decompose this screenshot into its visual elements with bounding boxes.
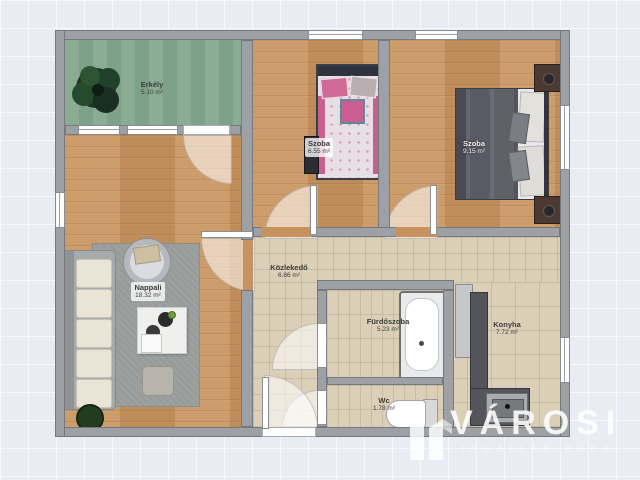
wall-bathroom-wc-divider xyxy=(327,377,443,385)
wall-kitchen-left xyxy=(443,290,454,427)
living-hall-door-opening xyxy=(243,240,253,290)
table-lamp xyxy=(543,205,555,217)
kitchen-counter-vertical xyxy=(470,292,488,398)
bathtub xyxy=(399,291,447,380)
window-balcony-1 xyxy=(78,125,120,135)
brand-tagline: INGATLANIRODA xyxy=(462,444,615,454)
table-lamp xyxy=(543,73,555,85)
hallway-floor-band xyxy=(253,237,560,282)
sofa xyxy=(60,250,116,410)
window-bedroom-large-right xyxy=(560,105,570,170)
coffee-table xyxy=(137,307,187,354)
window-bedroom-large-top xyxy=(415,30,458,40)
decor-plant xyxy=(168,311,176,319)
bedroom-small-door-opening xyxy=(262,227,312,237)
sofa-cushion xyxy=(76,319,112,348)
bathtub-drain xyxy=(419,341,424,346)
balcony-tree xyxy=(68,60,132,122)
blanket-edge xyxy=(318,96,325,174)
window-bedroom-small xyxy=(308,30,363,40)
sink-faucet xyxy=(505,404,510,409)
wall-mid-vertical-upper xyxy=(241,40,253,240)
floor-plan-canvas: { "watermark": { "brand": "VÁROSI", "tag… xyxy=(0,0,640,480)
sofa-cushion xyxy=(76,289,112,318)
wall-mid-vertical-lower xyxy=(241,290,253,427)
wall-outer-left xyxy=(55,30,65,437)
nightstand xyxy=(534,196,562,224)
entry-door-opening xyxy=(262,427,316,437)
toilet-bowl xyxy=(386,400,426,428)
entry-door-leaf xyxy=(262,377,269,429)
bedroom-large-door-leaf xyxy=(430,185,437,235)
bedroom-small-door-leaf xyxy=(310,185,317,235)
cushion xyxy=(340,99,365,124)
decor-box xyxy=(141,334,162,353)
pillow xyxy=(349,76,378,99)
wc-door-leaf xyxy=(317,390,327,425)
sofa-cushion xyxy=(76,349,112,378)
bedside-unit xyxy=(304,136,319,174)
balcony-door-opening xyxy=(183,125,230,135)
throw-blanket xyxy=(456,89,466,199)
bathroom-door-leaf xyxy=(317,323,327,368)
nightstand xyxy=(534,64,562,92)
wall-bedroom-divider xyxy=(378,40,390,237)
window-living-left xyxy=(55,192,65,228)
kitchen-sink xyxy=(486,393,528,423)
living-hall-door-leaf xyxy=(201,231,253,238)
armchair-pillow xyxy=(133,244,161,264)
window-balcony-2 xyxy=(127,125,178,135)
window-kitchen-right xyxy=(560,337,570,383)
headboard xyxy=(318,66,380,76)
pillow xyxy=(320,77,349,99)
bed-single xyxy=(316,64,382,180)
headboard xyxy=(544,89,548,199)
round-armchair xyxy=(123,238,171,286)
sofa-cushion xyxy=(76,259,112,288)
bathtub-basin xyxy=(405,298,439,371)
bed-double xyxy=(455,88,549,200)
wall-bathroom-top xyxy=(317,280,454,290)
pouf xyxy=(142,366,174,396)
